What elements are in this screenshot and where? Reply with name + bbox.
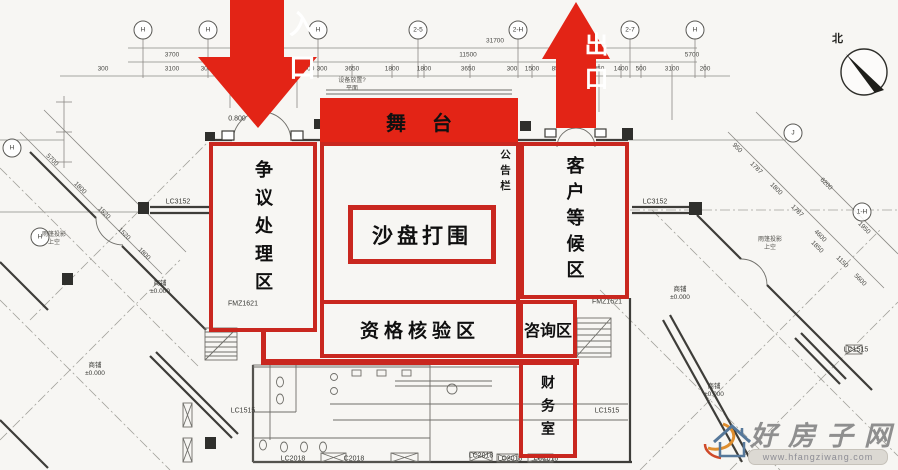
- grid-bubble: H: [134, 21, 153, 40]
- zone-finance-label: 财务室: [538, 375, 558, 444]
- component-label: LC1515: [595, 408, 620, 415]
- dimension-label: 11500: [459, 52, 477, 59]
- tiny-note: 雨篷投影 上空: [42, 232, 66, 248]
- component-label: LC3152: [166, 199, 191, 206]
- dimension-label: 1800: [385, 66, 399, 73]
- tiny-note: 雨篷投影 上空: [758, 237, 782, 253]
- dimension-label: 1800: [417, 66, 431, 73]
- dimension-label: 300: [98, 66, 109, 73]
- component-label: LC2018: [469, 453, 494, 460]
- level-marker: 商铺 ±0.000: [670, 286, 690, 302]
- tiny-note: 设备放置? 平面: [338, 78, 365, 94]
- zone-dispute: 争议处理区: [209, 150, 317, 310]
- exit-arrow-label: 出口: [541, 32, 611, 100]
- zone-finance-box: 财务室: [519, 360, 577, 458]
- grid-bubble: J: [784, 124, 803, 143]
- watermark-site-url: www.hfangziwang.com: [748, 449, 888, 465]
- grid-bubble: 2-7: [621, 21, 640, 40]
- zone-waiting-label: 客户等候区: [562, 156, 588, 286]
- component-label: LC1515: [844, 347, 869, 354]
- zone-sandtable-label: 沙盘打围: [372, 220, 472, 250]
- zone-sandtable-box: 沙盘打围: [348, 205, 496, 264]
- north-label: 北: [832, 30, 843, 46]
- grid-bubble: H: [3, 139, 22, 158]
- dimension-label: 300: [507, 66, 518, 73]
- dimension-label: 3650: [461, 66, 475, 73]
- zone-stage: 舞台: [320, 98, 518, 145]
- component-label: C2018: [344, 456, 365, 463]
- dimension-label: 5700: [685, 52, 699, 59]
- watermark-house-icon: [700, 416, 754, 464]
- grid-bubble: 2-H: [509, 21, 528, 40]
- zone-consult-label: 咨询区: [524, 317, 572, 341]
- dimension-label: 500: [636, 66, 647, 73]
- dimension-label: 1400: [614, 66, 628, 73]
- level-marker: 商铺 ±0.000: [85, 362, 105, 378]
- watermark-site-name: 好房子网: [750, 414, 898, 453]
- dimension-label: 31700: [486, 38, 504, 45]
- component-label: LC2018: [281, 456, 306, 463]
- floorplan-canvas: HHH2-52-H2-7HJ1-HHH 31700115003700570030…: [0, 0, 898, 470]
- entrance-arrow-label: 入口: [196, 10, 320, 96]
- dimension-label: 200: [700, 66, 711, 73]
- component-label: FMZ1621: [592, 299, 622, 306]
- level-marker: 商铺 ±0.000: [704, 383, 724, 399]
- dimension-label: 3650: [345, 66, 359, 73]
- zone-stage-label: 舞台: [360, 107, 478, 136]
- zone-verify-box: 资格核验区: [320, 300, 520, 358]
- grid-bubble: 1-H: [853, 203, 872, 222]
- zone-consult-box: 咨询区: [519, 300, 577, 358]
- overlay-boundary-bottom: [261, 359, 579, 365]
- zone-waiting: 客户等候区: [520, 148, 629, 293]
- zone-dispute-label: 争议处理区: [250, 160, 276, 300]
- level-marker: 商铺 ±0.000: [150, 280, 170, 296]
- component-label: LC1515: [231, 408, 256, 415]
- grid-bubble: H: [686, 21, 705, 40]
- dimension-label: 1500: [525, 66, 539, 73]
- dimension-label: 3700: [165, 52, 179, 59]
- dimension-label: 3100: [665, 66, 679, 73]
- bulletin-label: 公告栏: [498, 149, 513, 196]
- component-label: LC3152: [643, 199, 668, 206]
- zone-verify-label: 资格核验区: [360, 316, 480, 343]
- dimension-label: 3100: [165, 66, 179, 73]
- grid-bubble: 2-5: [409, 21, 428, 40]
